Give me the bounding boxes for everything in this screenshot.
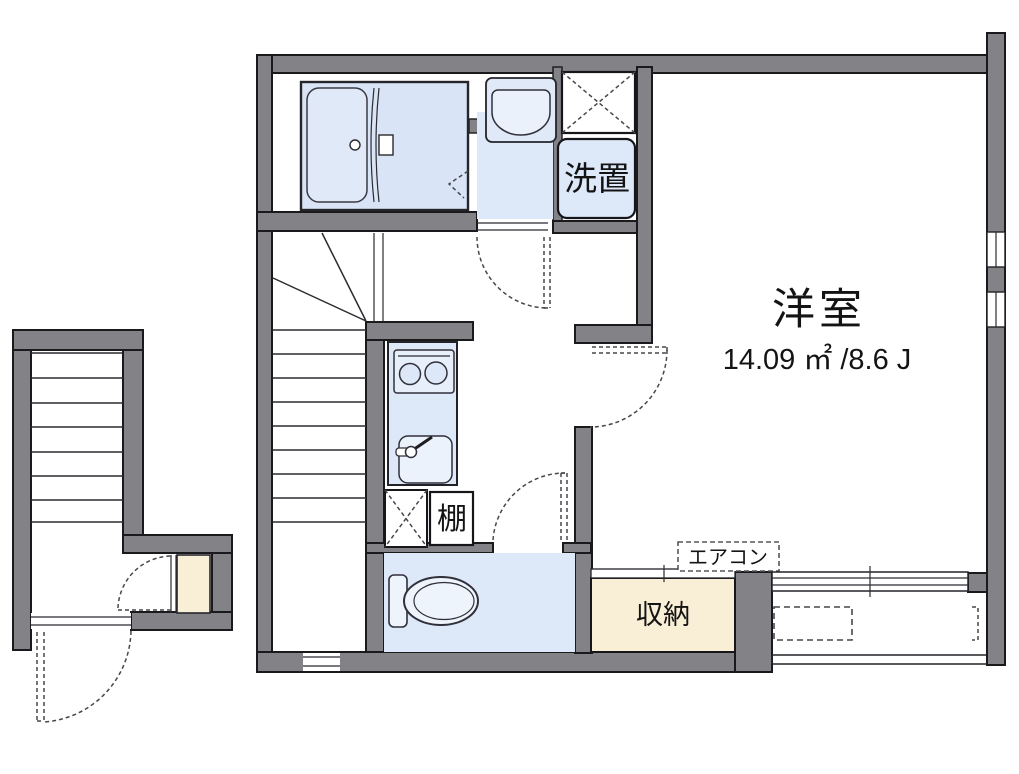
- kitchen-top-wall: [366, 322, 473, 340]
- kitchen-stove: [394, 350, 454, 393]
- main-room-door-swing: [590, 347, 667, 427]
- washroom-door-swing: [477, 237, 550, 308]
- entry-door-panel: [171, 555, 176, 613]
- stair-rail: [374, 233, 383, 322]
- entrance-stair-structure: [13, 330, 232, 722]
- toilet-door-swing: [493, 473, 567, 543]
- kitchen: [388, 342, 457, 485]
- aircon-label: エアコン: [688, 547, 768, 569]
- entry-bottom-wall: [131, 612, 232, 630]
- storage-balcony-divider-wall: [735, 572, 772, 672]
- bath-drain: [350, 140, 360, 150]
- washroom: [477, 78, 556, 308]
- right-wall-window-lower: [987, 292, 1005, 327]
- under-stair-vent: [303, 653, 340, 671]
- storage-closet: 収納: [591, 565, 735, 652]
- toilet-bowl: [404, 577, 478, 625]
- room-jog-wall: [575, 325, 652, 343]
- stair-kitchen-wall: [366, 322, 384, 652]
- outer-right-wall: [987, 33, 1005, 665]
- refrigerator-x-box: [385, 490, 427, 547]
- outer-top-wall: [257, 55, 1005, 73]
- balcony-dashed-area: [774, 607, 852, 640]
- room-left-wall-upper: [637, 67, 652, 343]
- outer-left-wall: [257, 55, 272, 672]
- balcony: [772, 566, 987, 664]
- bath-mixer: [379, 135, 393, 155]
- kitchen-sink: [396, 436, 452, 483]
- void-x-box: [562, 72, 635, 133]
- balcony-railing: [772, 655, 987, 664]
- balcony-sliding-window: [772, 566, 968, 597]
- window-flank-wall: [968, 573, 987, 592]
- floorplan-drawing: 洗置 棚: [0, 0, 1019, 774]
- entry-inner-door-swing: [118, 556, 172, 610]
- washer-bottom-wall: [553, 221, 637, 233]
- floorplan-canvas: 洗置 棚: [0, 0, 1019, 774]
- bath-door-stub: [469, 119, 478, 133]
- aircon-marker: エアコン: [678, 542, 779, 571]
- storage-label: 収納: [636, 600, 690, 630]
- shelf-box: 棚: [430, 492, 473, 545]
- balcony-dashed-bracket: [972, 607, 978, 640]
- main-room-label: 洋室: [772, 286, 866, 334]
- entry-stair-right-wall: [123, 350, 143, 553]
- washroom-threshold-lines: [477, 223, 548, 230]
- washer-place-label: 洗置: [564, 160, 630, 197]
- main-room: 洋室 14.09 ㎡ /8.6 J: [723, 286, 912, 376]
- main-room-area-label: 14.09 ㎡ /8.6 J: [723, 343, 912, 376]
- wash-basin-bowl: [492, 90, 550, 135]
- bathroom-bottom-wall: [257, 212, 477, 231]
- toilet-top-wall-stub: [563, 543, 591, 553]
- entrance-door-swing: [37, 631, 131, 722]
- right-wall-window-upper: [987, 232, 1005, 267]
- shelf-label: 棚: [437, 503, 467, 536]
- room-left-wall-lower: [575, 427, 592, 653]
- entry-mid-wall: [123, 535, 232, 553]
- bathroom: [301, 82, 468, 210]
- entry-top-wall: [13, 330, 143, 350]
- entry-left-wall: [13, 330, 31, 650]
- entrance-stairs: [31, 353, 123, 522]
- washer-place: 洗置: [558, 139, 635, 218]
- entry-step-box: [177, 555, 210, 613]
- faucet-head: [406, 447, 417, 458]
- winder-steps: [273, 233, 366, 321]
- entrance-opening: [31, 613, 131, 629]
